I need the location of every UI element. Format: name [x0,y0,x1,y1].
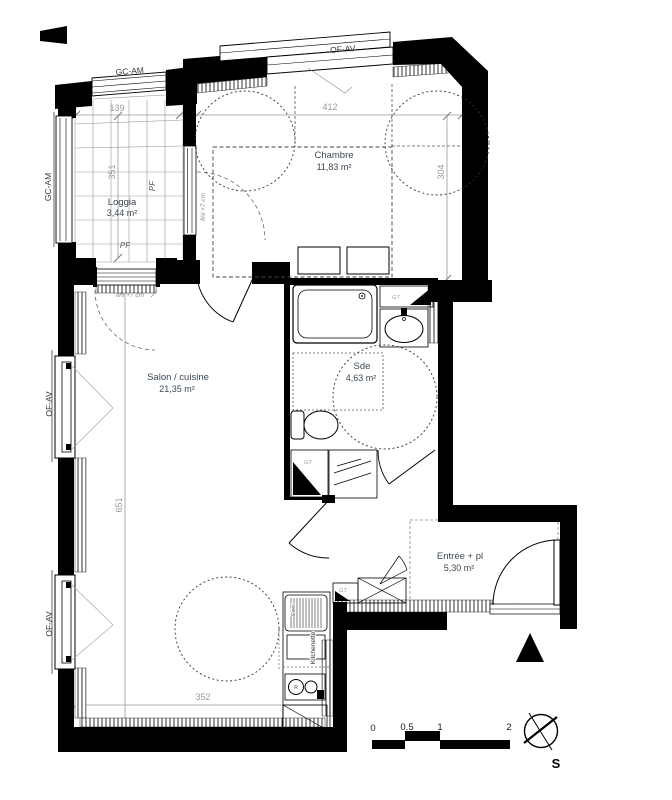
compass-south-label: S [552,756,561,771]
room-label-salon: Salon / cuisine [147,372,209,383]
kitchenette-label: Kitchenette [310,631,317,664]
window-label-of-av-lower: OF-AV [44,611,54,637]
dim-loggia-height: 351 [107,164,117,179]
loggia-chambre-pf-window [184,146,196,235]
room-area-loggia: 3,44 m² [107,208,138,218]
dim-loggia-width: 139 [109,103,124,113]
utility-cabinet [329,450,377,498]
loggia-left-window [54,112,72,247]
sde-door [378,450,435,484]
scale-tick-0: 0 [370,723,375,734]
dim-chambre-width: 412 [322,102,337,112]
room-area-sde: 4,63 m² [346,373,377,383]
room-label-entree: Entrée + pl [437,551,483,562]
loggia-tile-grid [75,94,183,262]
hob-label: R [294,685,298,691]
window-label-pf-bottom: PF [120,241,131,250]
entrance-arrow [516,633,544,662]
entree-dashed-zone [410,520,558,604]
dim-salon-height: 651 [114,497,124,512]
note-fini-bottom: fini +7 cm [116,292,145,299]
gt-label-entree: GT [339,588,347,594]
gt-duct-top [380,286,433,307]
scale-tick-2: 2 [506,722,511,733]
floor-plan: Loggia 3,44 m² Chambre 11,83 m² Salon / … [0,0,672,800]
salon-window-upper [52,350,113,462]
gt-duct-bottom [291,450,328,497]
walls [40,26,577,752]
salon-window-lower [52,570,113,674]
room-label-chambre: Chambre [314,150,353,161]
toilet [291,411,338,439]
window-label-pf-side: PF [148,180,157,191]
window-label-of-av-upper: OF-AV [44,391,54,417]
dim-salon-width: 352 [195,692,210,702]
window-label-gc-am-left: GC-AM [43,173,53,201]
scale-tick-1: 1 [437,722,442,733]
floor-plan-page: Loggia 3,44 m² Chambre 11,83 m² Salon / … [0,0,672,800]
room-area-chambre: 11,83 m² [317,162,352,172]
washbasin [380,308,428,347]
scale-tick-05: 0.5 [400,722,413,733]
nightstands [298,247,389,274]
room-area-salon: 21,35 m² [159,384,195,394]
gt-label-top: GT [392,295,400,301]
note-fini-side: fini +7 cm [200,192,207,221]
compass-needle-thick [524,717,557,743]
loggia-salon-pf-window [93,267,160,287]
entry-door [490,540,560,614]
gt-label-bottom: GT [304,460,312,466]
window-label-of-av-top: OF-AV [330,43,356,55]
room-area-entree: 5,30 m² [444,563,475,573]
room-label-sde: Sde [354,361,371,372]
entree-closet [358,556,407,603]
corridor-door [289,500,329,558]
room-label-loggia: Loggia [108,197,137,208]
scale-bar: 0 0.5 1 2 [370,722,511,749]
shower-tray [293,285,377,343]
dim-chambre-height: 304 [436,164,446,179]
chambre-door [197,278,253,322]
compass: S [524,713,561,771]
sink-label: Evier [291,604,297,616]
